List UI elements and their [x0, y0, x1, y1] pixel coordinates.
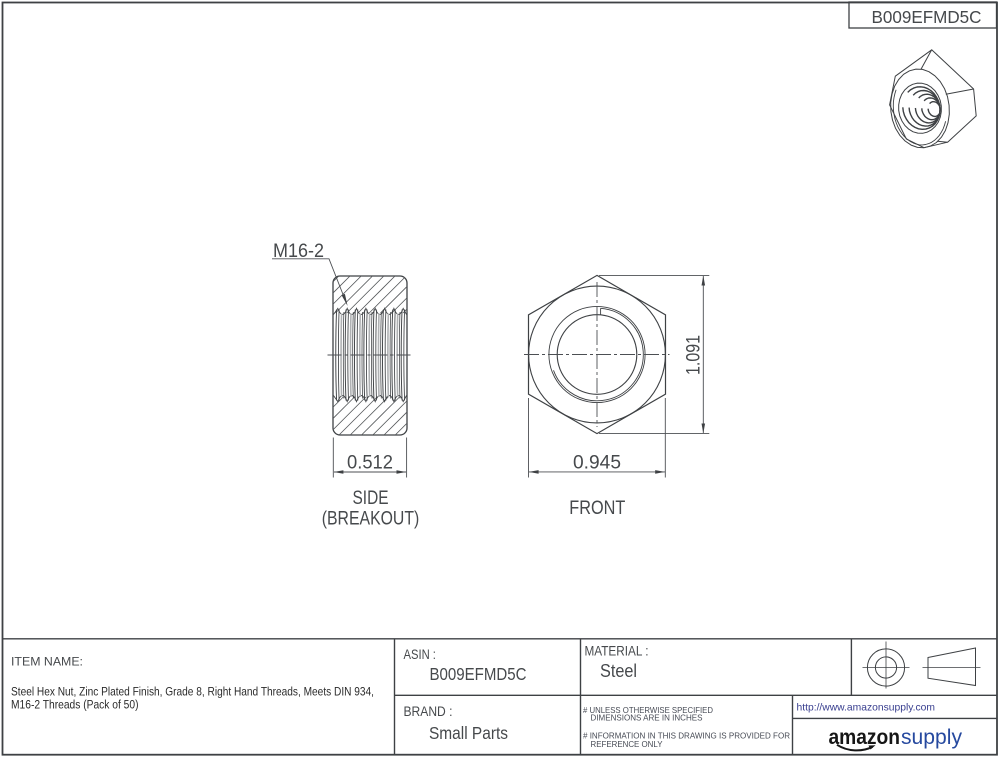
svg-text:0.512: 0.512	[347, 451, 393, 473]
svg-text:ITEM NAME:: ITEM NAME:	[11, 655, 83, 669]
svg-text:DIMENSIONS ARE IN INCHES: DIMENSIONS ARE IN INCHES	[591, 714, 704, 723]
svg-text:Small Parts: Small Parts	[429, 723, 508, 743]
svg-text:ASIN :: ASIN :	[404, 647, 436, 662]
svg-text:B009EFMD5C: B009EFMD5C	[430, 664, 527, 684]
svg-text:# INFORMATION IN THIS DRAWING: # INFORMATION IN THIS DRAWING IS PROVIDE…	[583, 731, 790, 740]
svg-text:Steel: Steel	[600, 660, 637, 681]
svg-text:1.091: 1.091	[682, 335, 704, 375]
svg-text:Steel Hex Nut, Zinc Plated Fin: Steel Hex Nut, Zinc Plated Finish, Grade…	[11, 685, 374, 699]
svg-text:FRONT: FRONT	[569, 497, 625, 519]
svg-text:REFERENCE ONLY: REFERENCE ONLY	[591, 740, 664, 749]
svg-text:0.945: 0.945	[573, 451, 621, 473]
svg-text:SIDE: SIDE	[353, 487, 389, 509]
svg-text:(BREAKOUT): (BREAKOUT)	[322, 507, 420, 529]
svg-text:B009EFMD5C: B009EFMD5C	[872, 7, 982, 27]
svg-text:M16-2 Threads (Pack of 50): M16-2 Threads (Pack of 50)	[11, 698, 139, 712]
svg-text:MATERIAL :: MATERIAL :	[585, 644, 649, 659]
svg-text:http://www.amazonsupply.com: http://www.amazonsupply.com	[797, 703, 936, 714]
svg-text:supply: supply	[901, 724, 962, 749]
svg-text:BRAND :: BRAND :	[404, 704, 453, 719]
